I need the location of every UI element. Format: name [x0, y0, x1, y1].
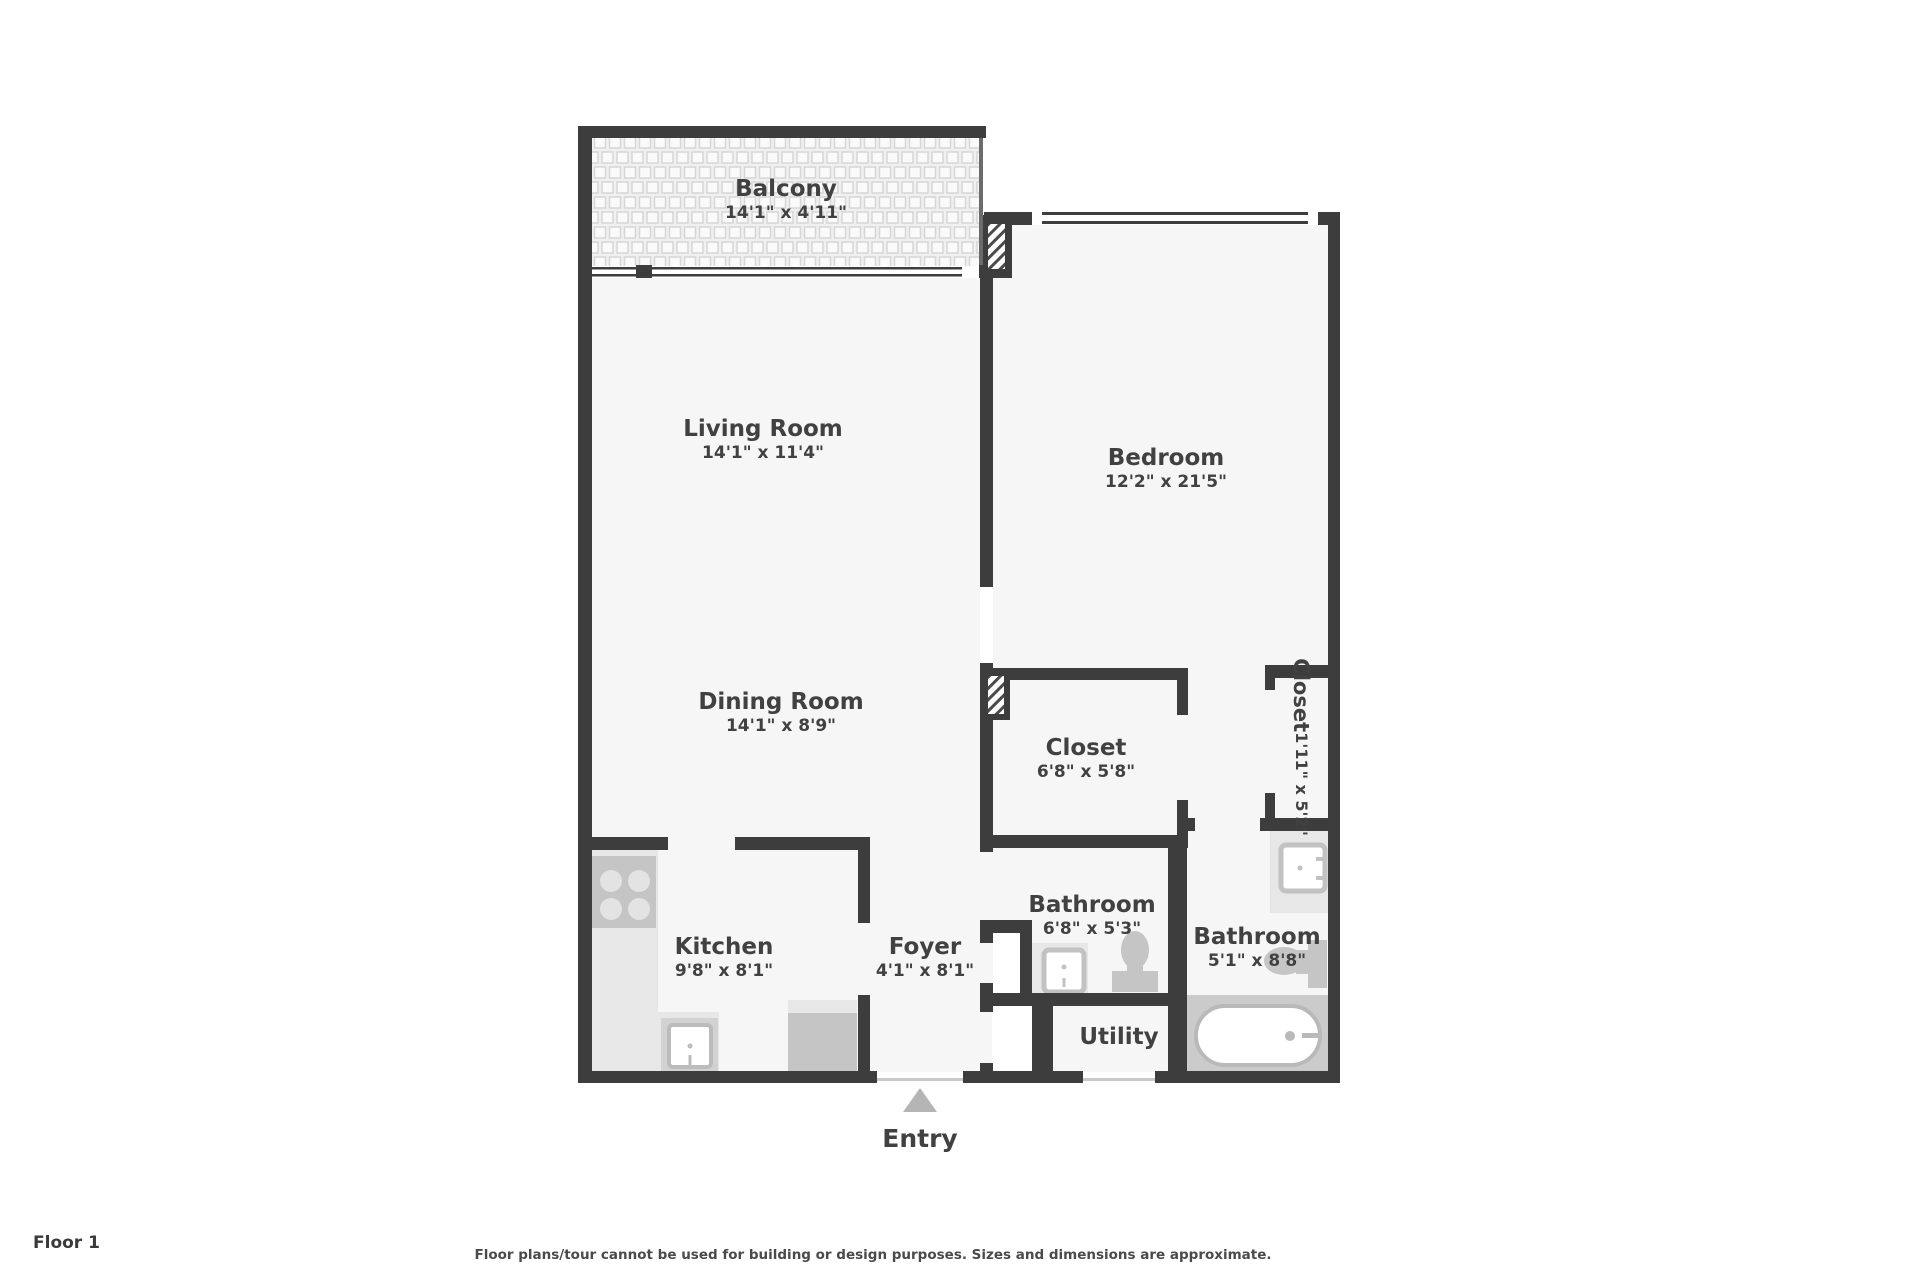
column-hatch-icon	[988, 676, 1004, 714]
dishwasher-icon	[788, 1000, 857, 1072]
entry-arrow-icon	[903, 1088, 937, 1112]
bathtub-icon	[1196, 1006, 1320, 1065]
stove-icon	[592, 856, 656, 928]
bedroom-window	[1032, 212, 1318, 225]
column-hatch-icon	[988, 224, 1005, 269]
balcony-edge-line	[979, 138, 983, 268]
living-room-window	[592, 265, 993, 278]
floor-areas	[592, 138, 1328, 1072]
bathroom-sink-icon	[1044, 950, 1084, 992]
floor-plan-drawing	[0, 0, 1920, 1280]
entry-label: Entry	[882, 1124, 957, 1153]
floor-number-label: Floor 1	[33, 1233, 100, 1253]
floor-plan-canvas: Balcony 14'1" x 4'11" Living Room 14'1" …	[0, 0, 1920, 1280]
balcony-tile-floor	[592, 138, 982, 268]
disclaimer-text: Floor plans/tour cannot be used for buil…	[474, 1247, 1271, 1263]
bathroom-sink-icon	[1281, 845, 1325, 891]
kitchen-sink-icon	[661, 1018, 718, 1072]
